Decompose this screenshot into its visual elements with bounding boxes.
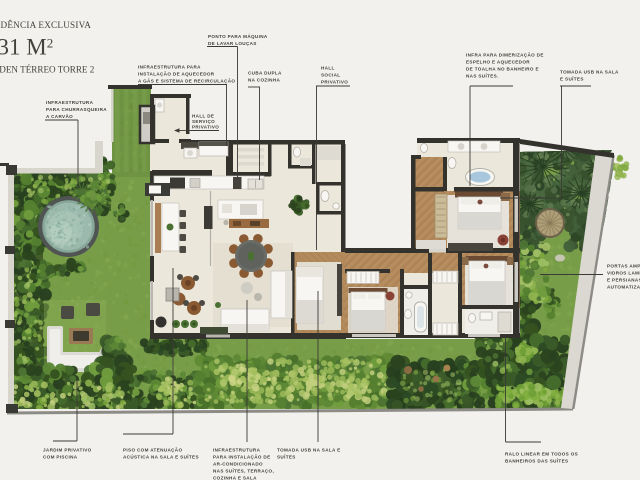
svg-text:PONTO PARA MÁQUINA: PONTO PARA MÁQUINA <box>208 33 268 39</box>
svg-text:A CARVÃO: A CARVÃO <box>46 113 73 119</box>
svg-text:PRIVATIVO: PRIVATIVO <box>192 125 219 130</box>
svg-text:SERVIÇO: SERVIÇO <box>192 119 215 124</box>
svg-text:INSTALAÇÃO DE AQUECEDOR: INSTALAÇÃO DE AQUECEDOR <box>138 70 215 76</box>
svg-text:A GÁS E SISTEMA DE RECIRCULAÇÃ: A GÁS E SISTEMA DE RECIRCULAÇÃO <box>138 77 235 83</box>
svg-text:NA COZINHA: NA COZINHA <box>248 78 280 83</box>
svg-text:DE LAVAR LOUÇAS: DE LAVAR LOUÇAS <box>208 41 257 46</box>
svg-text:INFRAESTRUTURA PARA: INFRAESTRUTURA PARA <box>138 64 201 69</box>
svg-text:INFRAESTRUTURA: INFRAESTRUTURA <box>46 100 94 105</box>
svg-text:HALL DE: HALL DE <box>192 114 214 119</box>
svg-text:CUBA DUPLA: CUBA DUPLA <box>248 71 282 76</box>
svg-text:PARA CHURRASQUEIRA: PARA CHURRASQUEIRA <box>46 107 107 112</box>
